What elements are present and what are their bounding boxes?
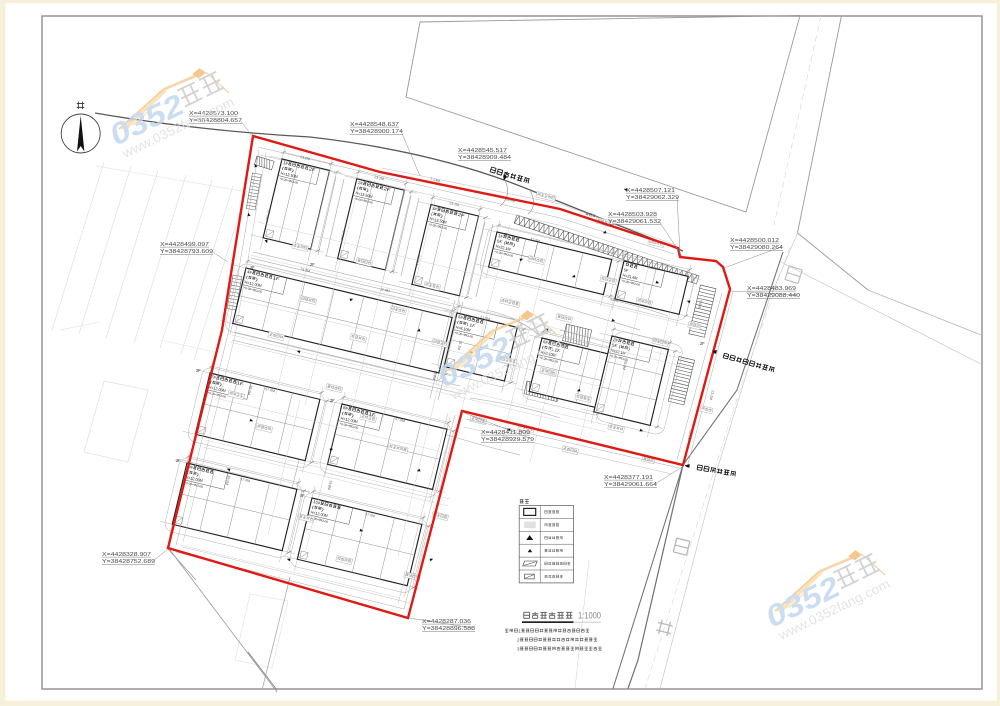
svg-text:2F: 2F — [700, 341, 705, 346]
svg-text:2F: 2F — [250, 265, 255, 270]
svg-text:2F: 2F — [330, 398, 335, 403]
svg-text:1: 1 — [518, 629, 521, 634]
svg-text:2F: 2F — [176, 458, 181, 463]
svg-text:3: 3 — [517, 647, 520, 652]
svg-text:2F: 2F — [196, 368, 201, 373]
svg-text:2F: 2F — [310, 262, 315, 267]
svg-text:1:1000: 1:1000 — [578, 611, 601, 621]
svg-text:2F: 2F — [504, 232, 509, 237]
svg-text:2: 2 — [517, 638, 520, 643]
